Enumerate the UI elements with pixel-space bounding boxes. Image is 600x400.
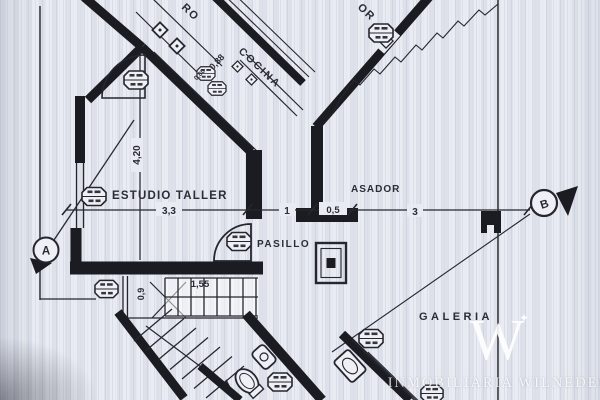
stove-burner-icon [169,38,184,53]
hex-marker-icon [124,71,148,89]
stove-burner-icon [152,22,167,37]
watermark-logo: W [470,307,525,372]
floorplan-svg: A B [0,0,600,400]
dim-1: 1 [284,206,290,217]
dim-3: 3 [412,207,418,218]
hex-marker-icon [268,373,292,391]
dim-3-3: 3,3 [162,206,176,217]
dim-0-9: 0,9 [136,288,146,301]
hex-marker-icon [359,330,383,348]
hex-marker-icon [369,24,393,42]
hex-markers [82,24,443,400]
dim-0-5: 0,5 [326,205,340,216]
section-marker-b: B [332,186,578,352]
hex-marker-icon [95,280,118,297]
floorplan-photo: A B [0,0,600,400]
section-a-label: A [42,246,50,258]
hex-marker-icon [208,82,226,96]
watermark-star-icon: ✦ [519,311,529,325]
dim-1-55: 1,55 [191,279,210,290]
dim-4-20: 4,20 [132,145,143,165]
grill-box [316,243,346,283]
hex-marker-icon [82,188,106,206]
hex-marker-icon [227,233,251,251]
diagonal-stairs [118,309,244,400]
label-asador: ASADOR [351,184,400,195]
label-fragment-top-right: OR [355,1,377,23]
asador-walls [296,0,498,215]
watermark-brand: INMOBILIARIA WILNEDER [388,375,600,391]
label-estudio-taller: ESTUDIO TALLER [112,190,228,202]
stove-burner-icon [232,61,243,72]
label-fragment-top-left: RO [179,1,201,23]
kitchen-band [136,0,315,116]
label-pasillo: PASILLO [257,239,310,250]
room-labels: ESTUDIO TALLER COCINA ASADOR PASILLO GAL… [112,1,493,323]
